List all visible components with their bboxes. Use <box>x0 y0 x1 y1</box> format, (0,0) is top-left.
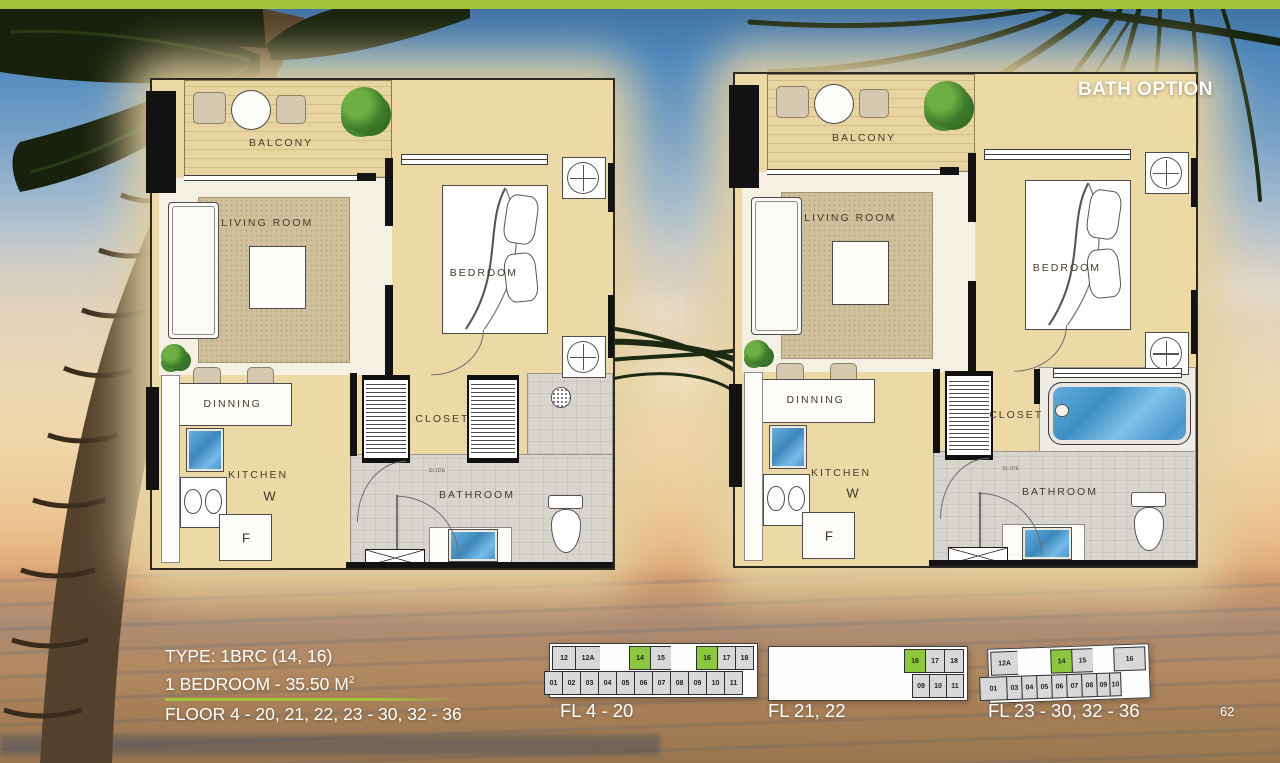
sofa-icon <box>168 202 219 339</box>
keyplan-unit-15: 15 <box>650 646 672 670</box>
room-label-bedroom: BEDROOM <box>450 267 518 279</box>
room-label-closet: CLOSET <box>989 409 1043 421</box>
balcony-table <box>814 84 854 124</box>
unit-type-line: TYPE: 1BRC (14, 16) <box>165 644 462 669</box>
keyplan-unit-11: 11 <box>724 671 743 695</box>
wardrobe-icon <box>945 371 992 460</box>
balcony-chair <box>276 95 306 124</box>
toilet-icon <box>548 495 583 510</box>
room-label-kitchen: KITCHEN <box>228 469 288 481</box>
bedroom-door-arc <box>1014 325 1067 372</box>
wall-segment <box>729 85 759 188</box>
shower-area <box>527 373 613 455</box>
keyplan-unit-12A: 12A <box>990 651 1019 676</box>
room-label-bathroom: BATHROOM <box>1022 486 1098 498</box>
keyplan-unit-15: 15 <box>1071 648 1094 673</box>
wall-segment <box>350 373 356 456</box>
washer-label: W <box>263 488 275 503</box>
balcony-chair <box>193 92 225 124</box>
wall-segment <box>385 158 392 226</box>
keyplan-unit-17: 17 <box>717 646 736 670</box>
keyplan-unit-06: 06 <box>634 671 653 695</box>
wall-segment <box>940 167 958 175</box>
plant-icon <box>161 344 186 369</box>
keyplan-row: 091011 <box>772 674 964 698</box>
keyplan-unit-01: 01 <box>544 671 563 695</box>
coffee-table <box>832 241 890 305</box>
sofa-icon <box>751 197 802 335</box>
balcony-railing <box>767 169 940 175</box>
wall-segment <box>146 387 159 489</box>
unit-floor-line: FLOOR 4 - 20, 21, 22, 23 - 30, 32 - 36 <box>165 702 462 727</box>
green-underline <box>165 698 461 701</box>
wall-segment <box>933 369 939 453</box>
fan-icon <box>1150 157 1182 189</box>
keyplan-unit-10: 10 <box>1109 672 1122 696</box>
keyplan-unit-18: 18 <box>735 646 754 670</box>
keyplan-row: 010304050607080910 <box>980 671 1147 701</box>
keyplan-fl-23-36: 12A141516 010304050607080910 <box>987 643 1151 704</box>
keyplan-unit-14: 14 <box>1050 649 1073 674</box>
kitchen-counter <box>161 375 179 563</box>
wall-segment <box>968 281 975 374</box>
keyplan-gap <box>771 674 913 698</box>
keyplan-unit-10: 10 <box>706 671 725 695</box>
kitchen-counter <box>744 372 762 561</box>
keyplan-unit-11: 11 <box>946 674 964 698</box>
bedroom-window <box>984 149 1132 160</box>
keyplan-unit-12: 12 <box>552 646 576 670</box>
keyplan-gap <box>671 646 697 670</box>
plant-icon <box>924 81 970 128</box>
keyplan-unit-18: 18 <box>944 649 964 673</box>
wall-segment <box>346 562 613 568</box>
wall-segment <box>1191 158 1197 207</box>
keyplan-caption: FL 4 - 20 <box>560 700 633 722</box>
page-number: 62 <box>1220 704 1234 719</box>
balcony-railing <box>184 175 357 181</box>
kitchen-sink-icon <box>187 429 224 471</box>
bedroom-window <box>401 154 549 165</box>
wall-segment <box>968 153 975 222</box>
keyplan-unit-16: 16 <box>1113 646 1146 671</box>
keyplan-unit-05: 05 <box>616 671 635 695</box>
room-label-dinning: DINNING <box>204 398 262 410</box>
plant-icon <box>341 87 387 133</box>
wall-segment <box>608 295 614 358</box>
top-accent-bar <box>0 0 1280 9</box>
fan-icon <box>1150 337 1182 369</box>
keyplan-row: 1212A1415161718 <box>553 646 754 670</box>
wall-segment <box>929 560 1196 566</box>
keyplan-unit-16: 16 <box>904 649 926 673</box>
wall-segment <box>357 173 375 181</box>
keyplan-gap <box>1092 647 1115 672</box>
keyplan-gap <box>600 646 630 670</box>
bathtub-icon <box>1048 382 1191 446</box>
keyplan-row: 0102030405060708091011 <box>545 671 754 695</box>
keyplan-gap <box>771 649 905 673</box>
keyplan-unit-14: 14 <box>629 646 651 670</box>
unit-area-line: 1 BEDROOM - 35.50 M2 <box>165 669 462 696</box>
wall-segment <box>608 163 614 212</box>
keyplan-unit-02: 02 <box>562 671 581 695</box>
room-label-balcony: BALCONY <box>249 137 313 149</box>
keyplan-unit-09: 09 <box>688 671 707 695</box>
keyplan-unit-01: 01 <box>979 676 1008 701</box>
keyplan-row: 161718 <box>772 649 964 673</box>
keyplan-unit-12A: 12A <box>575 646 601 670</box>
unit-info-block: TYPE: 1BRC (14, 16) 1 BEDROOM - 35.50 M2… <box>165 644 462 726</box>
keyplan-unit-03: 03 <box>580 671 599 695</box>
keyplan-fl-4-20: 1212A1415161718 0102030405060708091011 <box>549 643 758 698</box>
room-label-bathroom: BATHROOM <box>439 489 515 501</box>
keyplan-unit-09: 09 <box>912 674 930 698</box>
wardrobe-icon <box>362 375 409 463</box>
kitchen-sink-icon <box>770 426 807 468</box>
fridge-label: F <box>242 531 250 546</box>
wall-segment <box>1034 369 1040 403</box>
keyplan-unit-08: 08 <box>670 671 689 695</box>
room-label-closet: CLOSET <box>415 413 469 425</box>
balcony-chair <box>859 89 889 119</box>
room-label-living: LIVING ROOM <box>221 217 313 229</box>
keyplan-gap <box>1017 650 1052 675</box>
keyplan-fl-21-22: 161718 091011 <box>768 646 968 701</box>
room-label-bedroom: BEDROOM <box>1033 262 1101 274</box>
keyplan-unit-07: 07 <box>652 671 671 695</box>
bath-option-label: BATH OPTION <box>1078 79 1213 101</box>
slide-note: SLIDE <box>429 468 446 474</box>
floor-plan-bath-option: BALCONY LIVING ROOM BEDROOM DINNING KITC… <box>733 72 1198 568</box>
keyplan-unit-17: 17 <box>925 649 945 673</box>
brochure-page: BALCONY LIVING ROOM BEDROOM DINNING KITC… <box>0 0 1280 763</box>
bedroom-door-arc <box>431 329 484 375</box>
keyplan-unit-10: 10 <box>929 674 947 698</box>
wall-segment <box>146 91 176 193</box>
floor-plan-standard: BALCONY LIVING ROOM BEDROOM DINNING KITC… <box>150 78 615 570</box>
balcony-table <box>231 90 271 130</box>
keyplan-caption: FL 21, 22 <box>768 700 845 722</box>
tub-shelf <box>1053 368 1182 378</box>
plant-icon <box>744 340 769 366</box>
wall-segment <box>729 384 742 487</box>
washer-label: W <box>846 486 858 501</box>
keyplan-unit-16: 16 <box>696 646 718 670</box>
balcony-chair <box>776 86 808 118</box>
wardrobe-icon <box>467 375 519 463</box>
coffee-table <box>249 246 307 309</box>
wall-segment <box>1191 290 1197 354</box>
wall-segment <box>385 285 392 378</box>
fridge-label: F <box>825 528 833 543</box>
room-label-living: LIVING ROOM <box>804 212 896 224</box>
room-label-dinning: DINNING <box>787 394 845 406</box>
toilet-icon <box>1131 492 1166 507</box>
slide-note: SLIDE <box>1002 466 1019 472</box>
keyplan-caption: FL 23 - 30, 32 - 36 <box>988 700 1140 722</box>
room-label-kitchen: KITCHEN <box>811 467 871 479</box>
keyplan-unit-04: 04 <box>598 671 617 695</box>
room-label-balcony: BALCONY <box>832 132 896 144</box>
